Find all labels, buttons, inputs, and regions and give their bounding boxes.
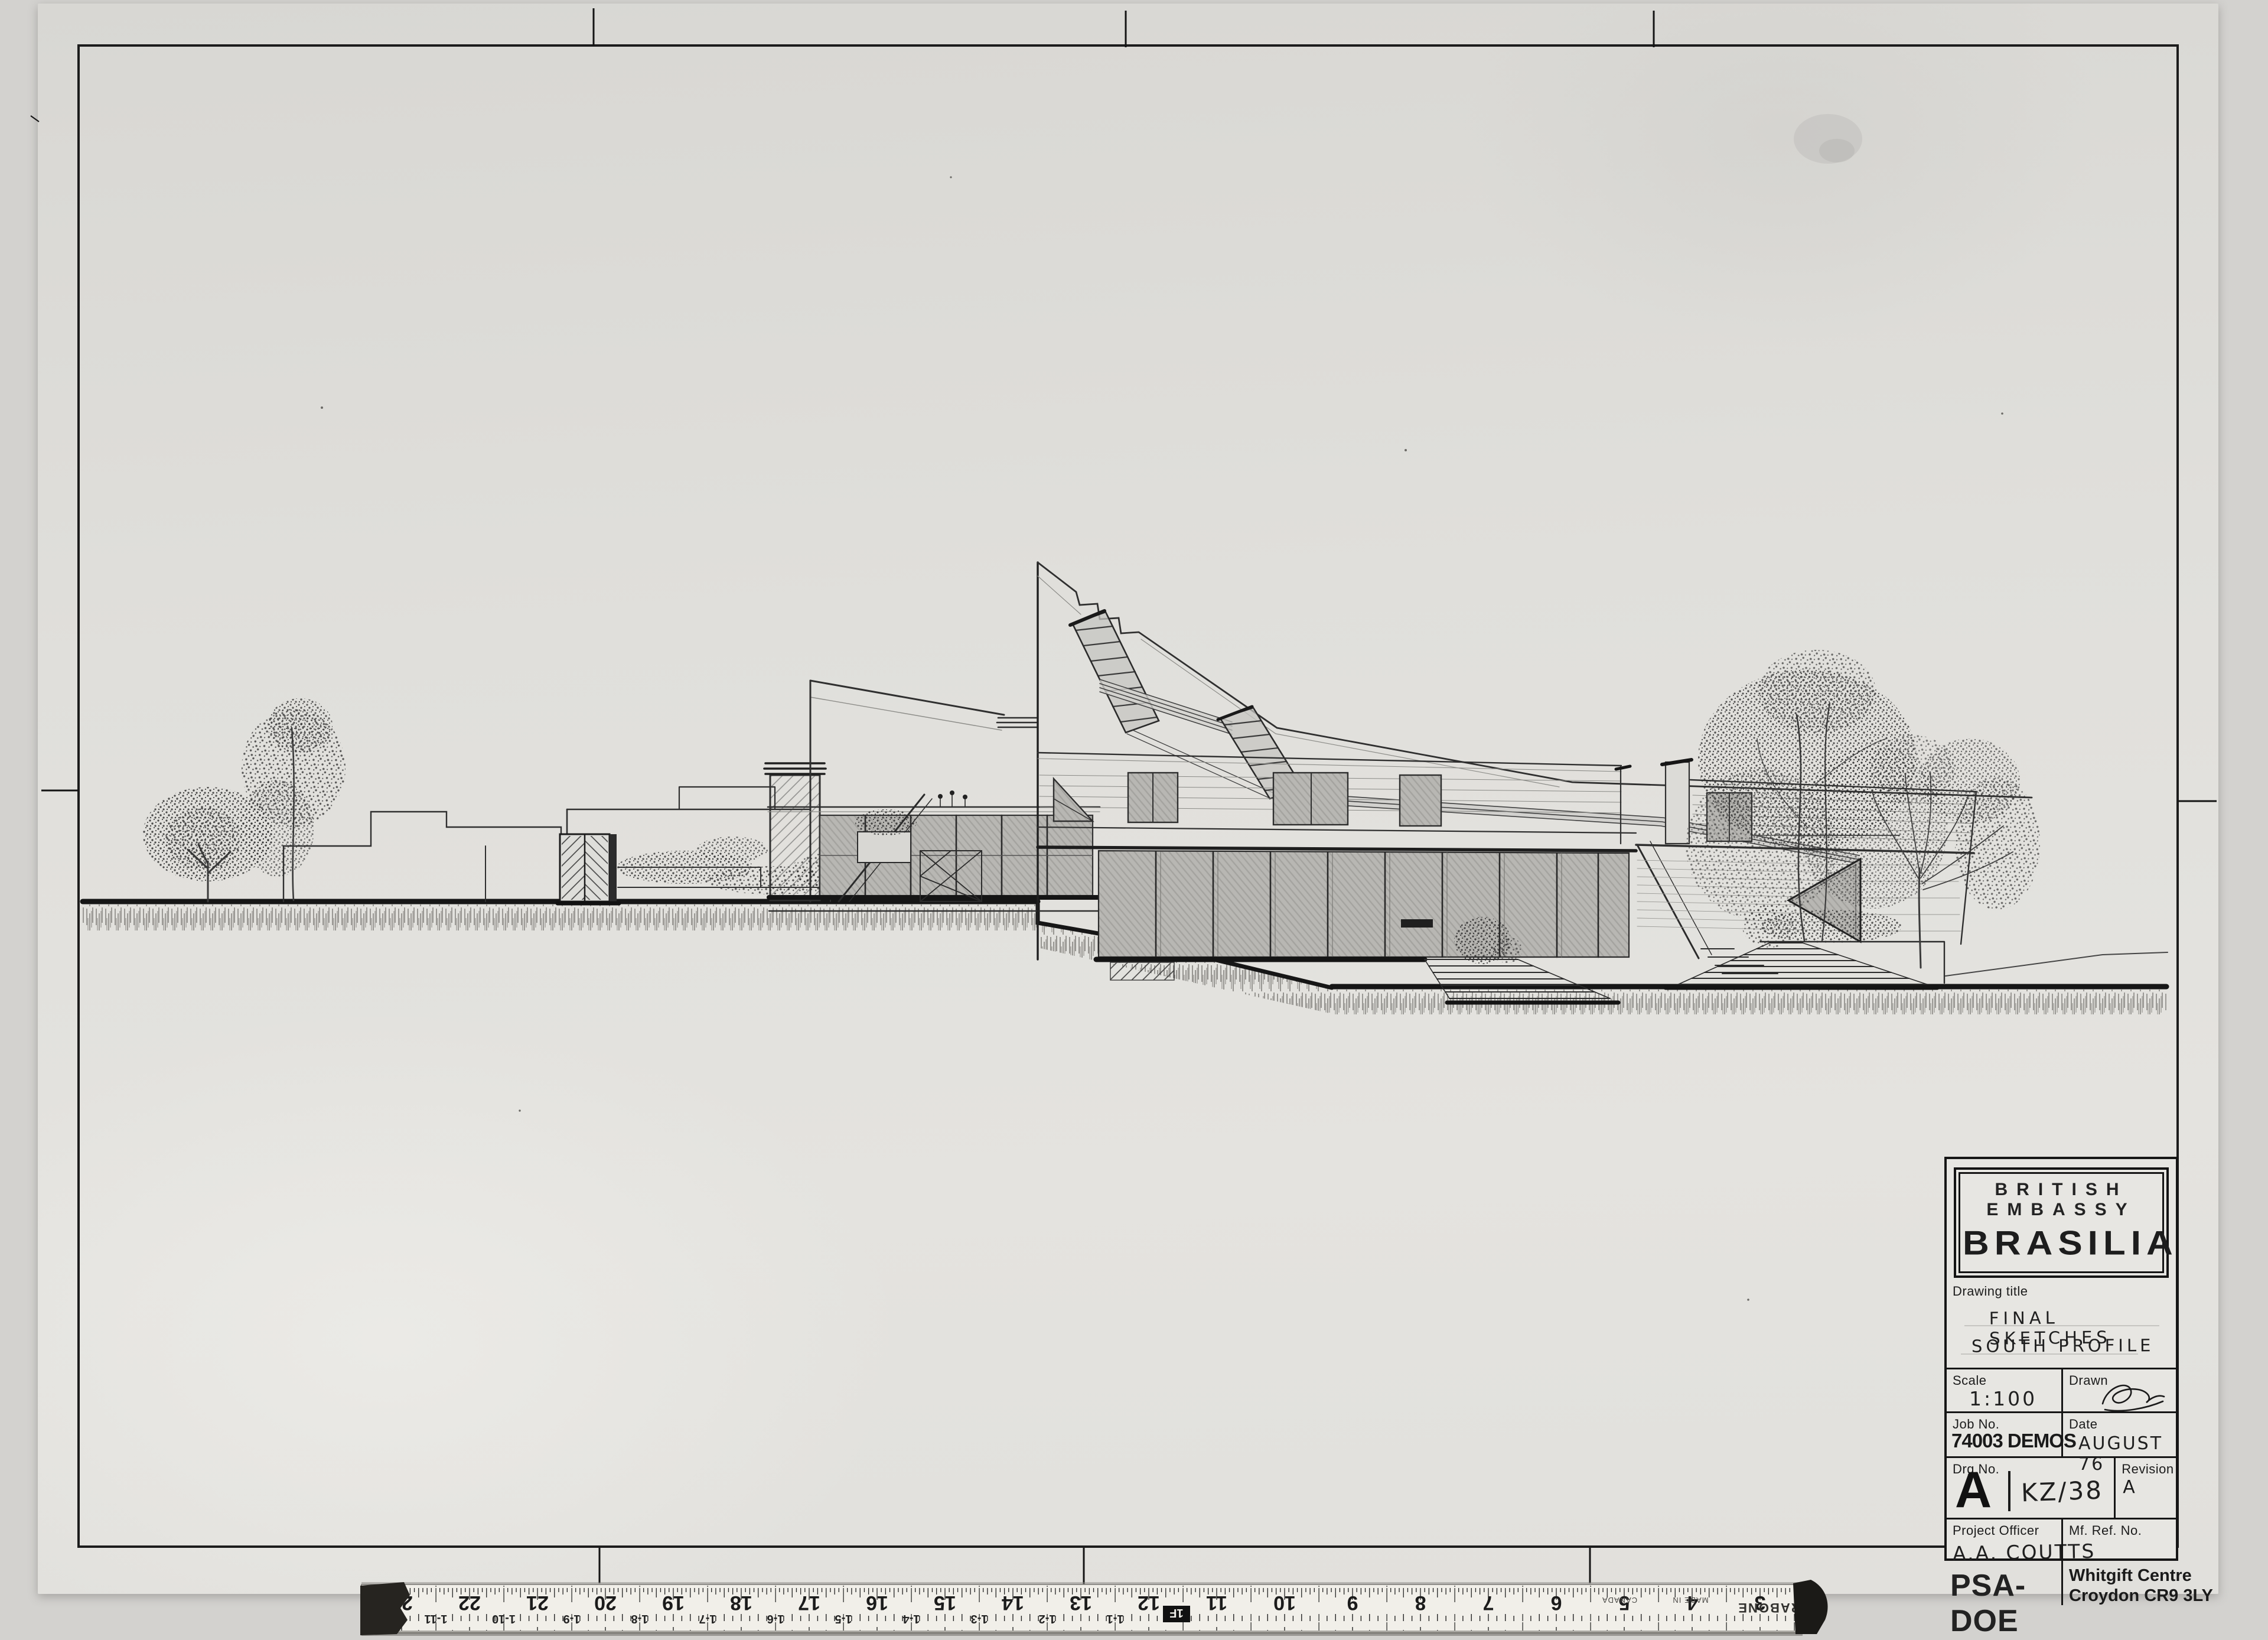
embassy-name: BRITISH EMBASSY <box>1963 1180 2160 1220</box>
title-block: BRITISH EMBASSY BRASILIA Drawing title F… <box>1944 1157 2178 1561</box>
embassy-city: BRASILIA <box>1963 1224 2160 1262</box>
south-elevation-drawing <box>83 562 2168 1014</box>
drawing-title-area: FINAL SKETCHES SOUTH PROFILE <box>1947 1299 2176 1368</box>
drawn-cell: Drawn <box>2061 1369 2176 1411</box>
embassy-logo-box: BRITISH EMBASSY BRASILIA <box>1954 1167 2169 1278</box>
garden-wall-left <box>283 812 561 902</box>
svg-text:10: 10 <box>1273 1592 1296 1614</box>
svg-text:22: 22 <box>458 1592 481 1614</box>
svg-text:7: 7 <box>1483 1592 1494 1614</box>
stairs-right <box>1666 943 1937 988</box>
svg-text:1-6: 1-6 <box>767 1612 784 1625</box>
svg-text:18: 18 <box>730 1592 752 1614</box>
drg-no-value: KZ/38 <box>2021 1476 2104 1508</box>
svg-text:20: 20 <box>594 1592 617 1614</box>
drg-no-cell: Drg.No. A KZ/38 <box>1947 1458 2114 1518</box>
svg-text:1-4: 1-4 <box>902 1612 920 1625</box>
drawing-title-label: Drawing title <box>1947 1280 2176 1299</box>
svg-text:CANADA: CANADA <box>1602 1596 1637 1605</box>
svg-text:1-10: 1-10 <box>492 1612 516 1625</box>
date-cell: Date AUGUST 76 <box>2061 1413 2176 1456</box>
tree-left-weeping <box>241 698 346 900</box>
revision-cell: Revision A <box>2114 1458 2176 1518</box>
revision-label: Revision <box>2116 1458 2176 1477</box>
scanned-drawing-sheet: { "title_block": { "agency_line1": "BRIT… <box>0 0 2268 1640</box>
svg-text:21: 21 <box>526 1592 549 1614</box>
svg-text:1-7: 1-7 <box>699 1612 716 1625</box>
drawn-signature <box>2094 1378 2171 1414</box>
scale-cell: Scale 1:100 <box>1947 1369 2061 1411</box>
date-label: Date <box>2063 1413 2176 1432</box>
mf-ref-value: Whitgift Centre Croydon CR9 3LY <box>2069 1566 2213 1606</box>
job-no-value: 74003 DEMOS <box>1951 1430 2076 1452</box>
svg-text:1-8: 1-8 <box>631 1612 649 1625</box>
mf-ref-line2: Croydon CR9 3LY <box>2069 1586 2213 1606</box>
svg-text:MADE IN: MADE IN <box>1672 1596 1708 1605</box>
chimney <box>764 763 826 900</box>
svg-text:17: 17 <box>798 1592 820 1614</box>
mf-ref-label: Mf. Ref. No. <box>2063 1519 2176 1538</box>
svg-text:15: 15 <box>934 1592 956 1614</box>
svg-text:9: 9 <box>1347 1592 1358 1614</box>
svg-text:16: 16 <box>866 1592 888 1614</box>
svg-text:1-3: 1-3 <box>971 1612 988 1625</box>
svg-text:1-9: 1-9 <box>563 1612 581 1625</box>
svg-text:14: 14 <box>1002 1592 1024 1614</box>
svg-text:12: 12 <box>1138 1592 1160 1614</box>
mf-ref-line1: Whitgift Centre <box>2069 1566 2213 1586</box>
drg-no-divider <box>2008 1471 2010 1511</box>
garden-gate <box>558 834 619 903</box>
svg-text:8: 8 <box>1415 1592 1426 1614</box>
svg-text:1-2: 1-2 <box>1039 1612 1056 1625</box>
svg-text:1F: 1F <box>1169 1606 1183 1619</box>
svg-text:1-11: 1-11 <box>425 1612 448 1625</box>
scale-label: Scale <box>1947 1369 2061 1388</box>
svg-text:13: 13 <box>1070 1592 1092 1614</box>
svg-text:RABONE: RABONE <box>1737 1600 1800 1615</box>
tape-right-end-clip <box>1793 1580 1828 1634</box>
revision-value: A <box>2123 1477 2135 1498</box>
svg-text:1-5: 1-5 <box>835 1612 852 1625</box>
elevation-drawing-canvas: 231-11221-10211-9201-8191-7181-6171-5161… <box>0 0 2268 1640</box>
drawing-title-line2: SOUTH PROFILE <box>1972 1335 2155 1356</box>
project-officer-cell: Project Officer A.A. COUTTS PSA-DOE <box>1947 1519 2061 1605</box>
svg-text:11: 11 <box>1206 1592 1227 1614</box>
measuring-tape: 231-11221-10211-9201-8191-7181-6171-5161… <box>360 1580 1828 1636</box>
svg-text:1-1: 1-1 <box>1107 1612 1124 1625</box>
project-officer-label: Project Officer <box>1947 1519 2061 1538</box>
job-no-cell: Job No. 74003 DEMOS <box>1947 1413 2061 1456</box>
svg-text:6: 6 <box>1551 1592 1562 1614</box>
mf-ref-cell: Mf. Ref. No. Whitgift Centre Croydon CR9… <box>2061 1519 2176 1605</box>
drg-no-prefix: A <box>1955 1466 1992 1514</box>
organisation-value: PSA-DOE <box>1950 1568 2061 1639</box>
svg-text:19: 19 <box>662 1592 685 1614</box>
scale-value: 1:100 <box>1969 1387 2037 1410</box>
